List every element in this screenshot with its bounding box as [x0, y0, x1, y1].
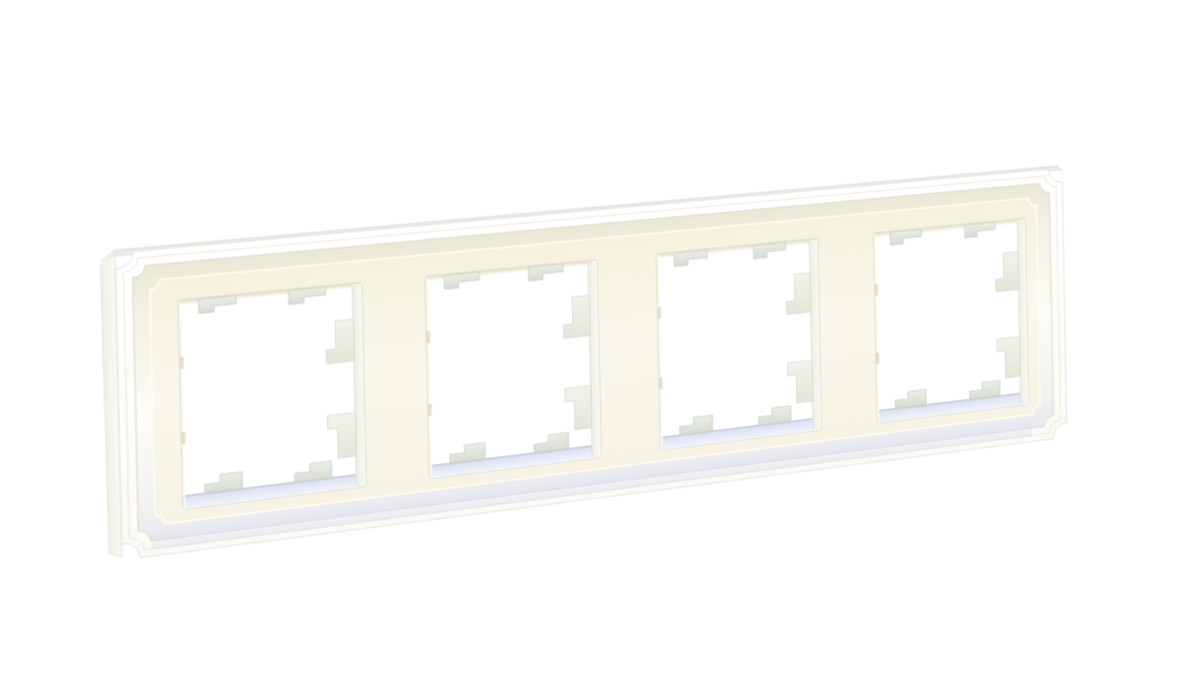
- opening-4: [874, 218, 1029, 423]
- left-wall-notch: [428, 404, 432, 416]
- left-wall-notch: [875, 284, 878, 295]
- left-wall-notch: [181, 432, 185, 445]
- left-wall-notch: [658, 307, 662, 319]
- left-wall-notch: [659, 377, 663, 389]
- opening-hole: [656, 238, 821, 450]
- frame-scene: [100, 165, 1067, 562]
- opening-1: [178, 283, 366, 510]
- product-photo-stage: White four-gang decorative wall switch f…: [0, 0, 1200, 676]
- opening-hole: [425, 260, 601, 479]
- opening-hole: [178, 283, 366, 510]
- frame-3d-wrapper: [115, 168, 1067, 560]
- opening-3: [656, 238, 821, 450]
- left-wall-notch: [876, 353, 879, 364]
- frame-photo-svg: [97, 159, 1083, 570]
- left-wall-notch: [426, 331, 430, 343]
- opening-2: [425, 260, 601, 479]
- left-wall-notch: [180, 357, 184, 370]
- opening-hole: [874, 218, 1029, 423]
